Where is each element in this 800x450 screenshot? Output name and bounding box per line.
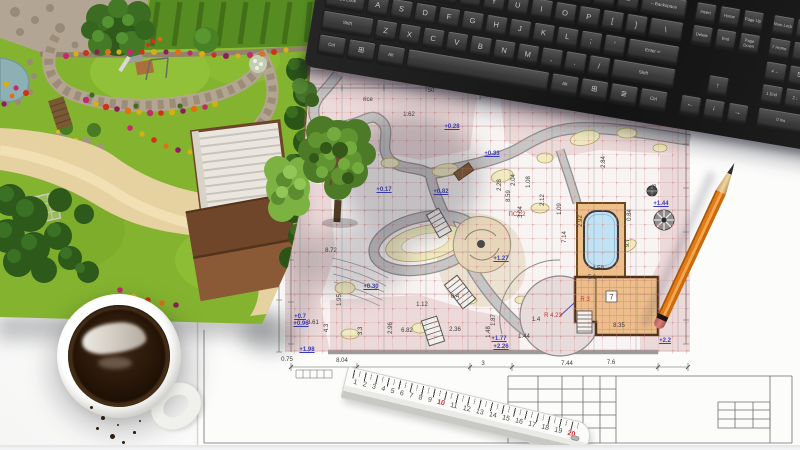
keyboard-key: 0 Ins xyxy=(755,106,800,135)
plan-label: +1.77 xyxy=(491,336,506,342)
keyboard-key: L xyxy=(555,25,580,49)
plan-label: 6.82 xyxy=(401,328,413,334)
plan-label: 7.44 xyxy=(561,361,573,367)
keyboard-key: = xyxy=(616,0,641,12)
keyboard-key: Alt xyxy=(375,43,406,68)
keyboard-key: Page Down xyxy=(737,32,762,56)
plan-label: 0.75 xyxy=(281,357,293,363)
plan-label: 0.4 xyxy=(451,294,459,300)
keyboard-key: \ xyxy=(647,17,684,43)
plan-label: 2.96 xyxy=(388,322,394,334)
coffee-speck xyxy=(139,420,141,422)
keyboard-key: F xyxy=(436,5,461,29)
plan-label: +2.2 xyxy=(659,338,671,344)
plan-label: 1.12 xyxy=(416,302,428,308)
keyboard-key: 1 End xyxy=(759,83,784,107)
ruler-number: 12 xyxy=(462,405,471,414)
plan-label: 2.36 xyxy=(449,327,461,333)
keyboard-key: Ctrl xyxy=(638,87,669,112)
plan-label: 4.59 xyxy=(592,266,604,272)
ruler-number: 6 xyxy=(399,390,404,398)
keyboard-key: D xyxy=(413,1,438,25)
keyboard-key: Num Lock xyxy=(771,13,796,37)
ruler-number: 1 xyxy=(353,379,358,387)
ruler-number: 16 xyxy=(514,417,523,426)
keyboard-key: , xyxy=(539,46,564,70)
keyboard-key: U xyxy=(505,0,530,17)
ruler-number: 17 xyxy=(527,420,536,429)
plan-label: 7.14 xyxy=(562,231,568,243)
plan-label: +1.27 xyxy=(493,256,508,262)
coffee-speck xyxy=(133,431,136,434)
keyboard-key: S xyxy=(389,0,414,21)
keyboard-key: N xyxy=(492,38,517,62)
coffee-speck xyxy=(96,427,99,430)
plan-label: 7.6 xyxy=(607,360,615,366)
keyboard-key: K xyxy=(531,21,556,45)
plan-label: 1.18 xyxy=(652,184,658,196)
coffee-reflection-small xyxy=(98,357,132,369)
ruler-number: 19 xyxy=(554,427,563,436)
keyboard-key: End xyxy=(713,28,738,52)
ruler-number: 10 xyxy=(436,399,445,408)
keyboard-key: Y xyxy=(482,0,507,13)
plan-label: +1.98 xyxy=(299,347,314,353)
ruler-number: 8 xyxy=(418,394,423,402)
coffee-speck xyxy=(117,424,119,426)
keyboard-key: [ xyxy=(600,9,625,33)
plan-label: 3.3 xyxy=(358,327,364,335)
ruler-number: 5 xyxy=(390,388,395,396)
keyboard-key: A xyxy=(365,0,390,17)
plan-label: 3.04 xyxy=(518,206,524,218)
plan-label: R 3 xyxy=(580,297,589,303)
keyboard-key: ; xyxy=(578,29,603,53)
plan-label: 5.6 xyxy=(588,275,596,281)
keyboard-key: I xyxy=(529,0,554,21)
plan-label: 8.35 xyxy=(613,323,625,329)
plan-label: 8.59 xyxy=(506,190,512,202)
keyboard-key: ⊞ xyxy=(346,38,377,63)
keyboard-key: ⊞ xyxy=(579,77,610,102)
keyboard-key: 7 Home xyxy=(767,37,792,61)
keyboard-key: Home xyxy=(717,4,742,28)
keyboard-key: ← xyxy=(678,93,703,117)
coffee-cup xyxy=(57,294,181,418)
ruler-number: 13 xyxy=(475,408,484,417)
plan-label: 1.09 xyxy=(557,203,563,215)
plan-label: 3 xyxy=(481,361,484,367)
keyboard-nav-block: InsertHomePage UpDeleteEndPage Down↑←↓→ xyxy=(677,0,765,127)
keyboard-key: H xyxy=(484,13,509,37)
plan-label: 0.84 xyxy=(627,209,633,221)
plan-label: 1.44 xyxy=(518,334,530,340)
keyboard-key: Alt xyxy=(549,72,580,97)
keyboard-key: Z xyxy=(373,18,398,42)
keyboard-key: P xyxy=(576,5,601,29)
plan-label: 2.04 xyxy=(511,174,517,186)
plan-label: 1.48 xyxy=(486,326,492,338)
main-tree xyxy=(298,116,376,228)
coffee-speck xyxy=(122,441,125,444)
keyboard-key: Insert xyxy=(693,0,718,24)
plan-label: 2.84 xyxy=(601,156,607,168)
keyboard-key: O xyxy=(553,1,578,25)
plan-label: R 4.23 xyxy=(544,313,562,319)
ruler-number: 9 xyxy=(427,397,432,405)
coffee-speck xyxy=(90,406,93,409)
keyboard-key: ] xyxy=(624,13,649,37)
keyboard-key: G xyxy=(460,9,485,33)
keyboard-key: Ctrl xyxy=(316,33,347,58)
plan-label: 9.7 xyxy=(625,239,631,247)
keyboard-key: B xyxy=(468,34,493,58)
paper-bottom-edge xyxy=(0,445,800,450)
keyboard-key: . xyxy=(563,50,588,74)
plan-label: 1.4 xyxy=(532,317,540,323)
keyboard-key: 2 ↓ xyxy=(783,87,800,111)
ruler-number: 18 xyxy=(540,424,549,433)
ruler-number: 4 xyxy=(380,385,385,393)
plan-label: +0.33 xyxy=(484,151,499,157)
plan-label: +2.26 xyxy=(493,344,508,350)
keyboard-key: J xyxy=(507,17,532,41)
keyboard-key: 5 xyxy=(787,64,800,88)
ruler-number: 15 xyxy=(501,414,510,423)
keyboard-key: X xyxy=(397,22,422,46)
coffee-speck xyxy=(110,434,115,439)
keyboard-key: Page Up xyxy=(741,8,766,32)
plan-label: 2.92 xyxy=(578,215,584,227)
keyboard-key: / xyxy=(794,17,800,41)
plan-label: +1.44 xyxy=(653,201,668,207)
keyboard-key: V xyxy=(444,30,469,54)
keyboard-key: ≣ xyxy=(609,82,640,107)
plan-label: 1.08 xyxy=(526,176,532,188)
plan-label: 1.87 xyxy=(491,314,497,326)
keyboard-key: → xyxy=(725,101,750,125)
keyboard-key: ↑ xyxy=(705,74,730,98)
coffee-surface xyxy=(68,305,170,407)
keyboard-key: C xyxy=(421,26,446,50)
ruler-number: 2 xyxy=(362,381,367,389)
keyboard-key: ↓ xyxy=(701,97,726,121)
keyboard-key: Delete xyxy=(689,24,714,48)
keyboard-key: ' xyxy=(602,33,627,57)
ruler-number: 7 xyxy=(408,392,413,400)
keyboard-key: / xyxy=(586,54,611,78)
keyboard-key: M xyxy=(515,42,540,66)
coffee-speck xyxy=(101,416,105,420)
ruler-number: 11 xyxy=(449,402,458,410)
ruler-hanging-slot xyxy=(570,435,580,442)
plan-label: 8.04 xyxy=(336,358,348,364)
desk-scene: 7 xyxy=(0,0,800,450)
plan-label: 2.12 xyxy=(540,194,546,206)
ruler-number: 14 xyxy=(488,411,497,420)
plan-label: 2.28 xyxy=(497,179,503,191)
keyboard-key: 8 ↑ xyxy=(790,41,800,65)
ruler-number: 3 xyxy=(371,383,376,391)
keyboard-key: 4 ← xyxy=(763,60,788,84)
